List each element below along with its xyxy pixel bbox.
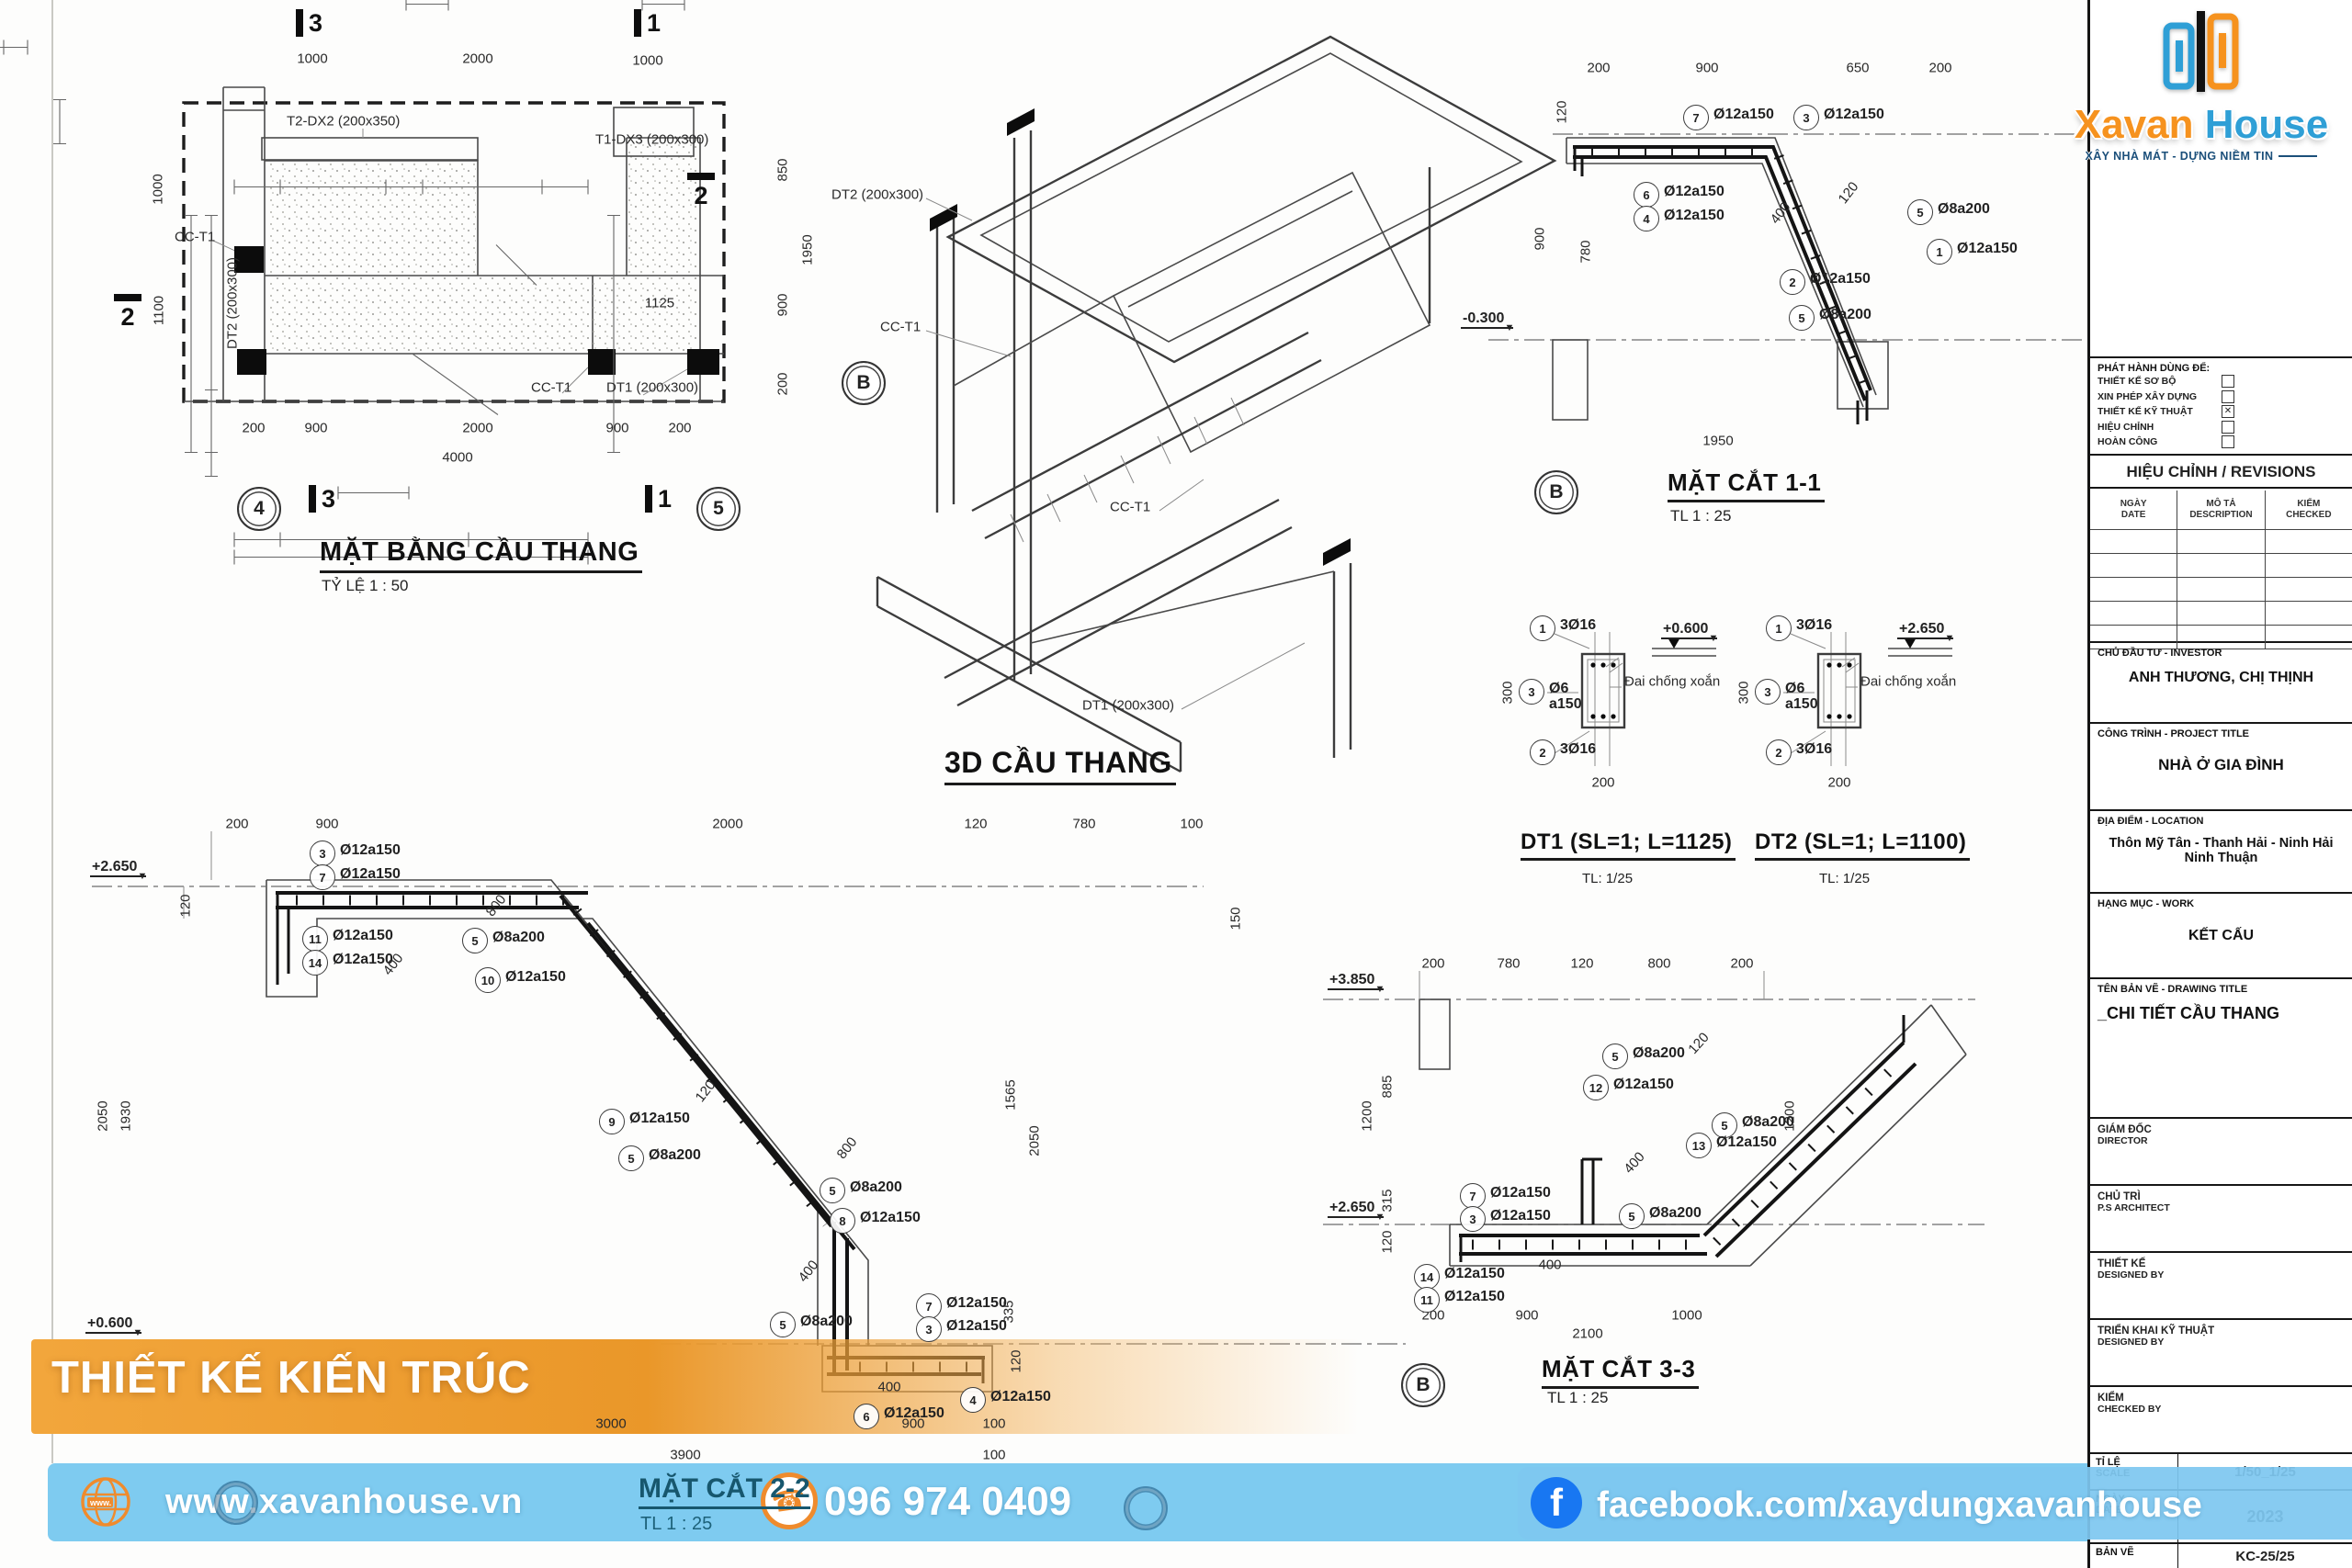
release-item-label: HIỆU CHỈNH	[2098, 422, 2154, 433]
revisions-cell	[2090, 554, 2177, 577]
signer-role-en: DIRECTOR	[2098, 1135, 2345, 1146]
revisions-cell	[2177, 578, 2265, 601]
logo-name-1: Xavan	[2075, 102, 2194, 147]
sec22-scale: TL 1 : 25	[640, 1514, 712, 1535]
signer-row: KIỂMCHECKED BY	[2090, 1387, 2352, 1454]
revisions-empty-row	[2090, 578, 2352, 602]
revisions-empty-row	[2090, 554, 2352, 578]
signer-role-vi: THIẾT KẾ	[2098, 1258, 2345, 1269]
release-item: THIẾT KẾ KỸ THUẬT✕	[2098, 404, 2345, 420]
release-item-label: HOÀN CÔNG	[2098, 436, 2157, 447]
company-logo: Xavan House XÂY NHÀ MÁT - DỰNG NIỀM TIN	[2056, 9, 2346, 179]
revisions-column-header: NGÀY DATE	[2090, 491, 2177, 529]
sec33-scale: TL 1 : 25	[1547, 1389, 1608, 1407]
revisions-cell	[2177, 554, 2265, 577]
investor-label: CHỦ ĐẦU TƯ - INVESTOR	[2098, 648, 2345, 659]
revisions-columns: NGÀY DATEMÔ TẢ DESCRIPTIONKIỂM CHECKED	[2090, 491, 2352, 530]
location-section: ĐỊA ĐIỂM - LOCATION Thôn Mỹ Tân - Thanh …	[2090, 811, 2352, 894]
release-item: XIN PHÉP XÂY DỰNG	[2098, 389, 2345, 405]
investor-value: ANH THƯƠNG, CHỊ THỊNH	[2098, 670, 2345, 686]
signer-row: CHỦ TRÌP.S ARCHITECT	[2090, 1186, 2352, 1253]
globe-icon: www.	[79, 1475, 132, 1533]
release-item-label: THIẾT KẾ SƠ BỘ	[2098, 376, 2176, 387]
signer-role-en: DESIGNED BY	[2098, 1337, 2345, 1348]
iso-linework	[877, 37, 1555, 772]
brand-banner: THIẾT KẾ KIẾN TRÚC	[31, 1339, 1400, 1434]
project-label: CÔNG TRÌNH - PROJECT TITLE	[2098, 728, 2345, 739]
revisions-cell	[2090, 602, 2177, 625]
logo-tagline: XÂY NHÀ MÁT - DỰNG NIỀM TIN	[2086, 150, 2274, 163]
signer-role-vi: CHỦ TRÌ	[2098, 1191, 2345, 1202]
release-item-label: THIẾT KẾ KỸ THUẬT	[2098, 406, 2193, 417]
location-value: Thôn Mỹ Tân - Thanh Hải - Ninh Hải Ninh …	[2098, 836, 2345, 865]
plan-title: MẶT BẰNG CẦU THANG	[320, 537, 642, 573]
work-label: HẠNG MỤC - WORK	[2098, 898, 2345, 909]
iso-title: 3D CẦU THANG	[944, 746, 1176, 785]
title-block: PHÁT HÀNH DÙNG ĐỂ: THIẾT KẾ SƠ BỘXIN PHÉ…	[2087, 0, 2352, 1568]
work-value: KẾT CẤU	[2098, 928, 2345, 944]
revisions-cell	[2177, 530, 2265, 553]
revisions-cell	[2090, 578, 2177, 601]
revisions-table: NGÀY DATEMÔ TẢ DESCRIPTIONKIỂM CHECKED	[2090, 491, 2352, 643]
facebook-icon: f	[1531, 1477, 1582, 1529]
logo-tagline-row: XÂY NHÀ MÁT - DỰNG NIỀM TIN	[2056, 150, 2346, 163]
detail-linework	[332, 0, 1952, 766]
release-item-label: XIN PHÉP XÂY DỰNG	[2098, 391, 2197, 402]
brand-banner-text: THIẾT KẾ KIẾN TRÚC	[51, 1352, 531, 1404]
logo-name-2: House	[2193, 102, 2328, 147]
signer-rows: GIÁM ĐỐCDIRECTORCHỦ TRÌP.S ARCHITECTTHIẾ…	[2090, 1119, 2352, 1454]
dt1-title: DT1 (SL=1; L=1125)	[1521, 829, 1736, 861]
signer-role-en: DESIGNED BY	[2098, 1269, 2345, 1280]
facebook-link[interactable]: facebook.com/xaydungxavanhouse	[1597, 1485, 2202, 1526]
location-label: ĐỊA ĐIỂM - LOCATION	[2098, 816, 2345, 827]
release-title: PHÁT HÀNH DÙNG ĐỂ:	[2098, 363, 2345, 374]
revisions-cell	[2266, 602, 2352, 625]
sec11-title: MẶT CẮT 1-1	[1668, 468, 1825, 502]
checkbox-unchecked[interactable]	[2222, 390, 2234, 403]
signer-role-vi: TRIỂN KHAI KỸ THUẬT	[2098, 1325, 2345, 1337]
sec11-scale: TL 1 : 25	[1670, 507, 1731, 525]
signer-role-en: CHECKED BY	[2098, 1404, 2345, 1415]
revisions-cell	[2266, 554, 2352, 577]
globe-caption: www.	[89, 1498, 111, 1507]
revisions-header: HIỆU CHỈNH / REVISIONS	[2090, 457, 2352, 489]
release-item: HIỆU CHỈNH	[2098, 420, 2345, 435]
checkbox-unchecked[interactable]	[2222, 421, 2234, 434]
logo-buildings-icon	[2159, 9, 2244, 97]
investor-section: CHỦ ĐẦU TƯ - INVESTOR ANH THƯƠNG, CHỊ TH…	[2090, 643, 2352, 724]
facebook-glyph: f	[1550, 1481, 1563, 1525]
sec22-title: MẶT CẮT 2-2	[639, 1473, 810, 1509]
signer-role-vi: KIỂM	[2098, 1393, 2345, 1404]
revisions-cell	[2090, 530, 2177, 553]
phone-number[interactable]: 096 974 0409	[824, 1479, 1071, 1525]
release-item: THIẾT KẾ SƠ BỘ	[2098, 374, 2345, 389]
revisions-column-header: MÔ TẢ DESCRIPTION	[2177, 491, 2265, 529]
revisions-column-header: KIỂM CHECKED	[2266, 491, 2352, 529]
sec33-title: MẶT CẮT 3-3	[1542, 1355, 1699, 1389]
drawing-linework: .o{fill:none;stroke:#4a4a4a;stroke-width…	[0, 0, 2352, 1568]
signer-row: GIÁM ĐỐCDIRECTOR	[2090, 1119, 2352, 1186]
checkbox-unchecked[interactable]	[2222, 375, 2234, 388]
revisions-cell	[2266, 530, 2352, 553]
dt1-scale: TL: 1/25	[1582, 871, 1633, 886]
revisions-empty-row	[2090, 530, 2352, 554]
website-link[interactable]: www.xavanhouse.vn	[165, 1483, 523, 1522]
project-value: NHÀ Ở GIA ĐÌNH	[2098, 756, 2345, 774]
signer-row: TRIỂN KHAI KỸ THUẬTDESIGNED BY	[2090, 1320, 2352, 1387]
tagline-rule	[2278, 155, 2317, 158]
facebook-strip: f facebook.com/xaydungxavanhouse	[1518, 1467, 2352, 1540]
plan-linework	[0, 0, 724, 401]
revisions-empty-row	[2090, 602, 2352, 626]
revisions-cell	[2266, 578, 2352, 601]
sheet-number: KC-25/25	[2178, 1544, 2352, 1568]
release-section: PHÁT HÀNH DÙNG ĐỂ: THIẾT KẾ SƠ BỘXIN PHÉ…	[2090, 356, 2352, 456]
logo-name: Xavan House	[2056, 102, 2346, 148]
dt2-scale: TL: 1/25	[1819, 871, 1870, 886]
sheet-row: BẢN VẼ KC-25/25	[2090, 1544, 2352, 1568]
signer-row: THIẾT KẾDESIGNED BY	[2090, 1253, 2352, 1320]
checkbox-checked[interactable]: ✕	[2222, 405, 2234, 418]
drawing-title-value: _CHI TIẾT CẦU THANG	[2098, 1004, 2345, 1023]
revisions-body	[2090, 530, 2352, 649]
drawing-sheet: .o{fill:none;stroke:#4a4a4a;stroke-width…	[0, 0, 2352, 1568]
sheet-label: BẢN VẼ	[2096, 1547, 2172, 1558]
release-rows: THIẾT KẾ SƠ BỘXIN PHÉP XÂY DỰNGTHIẾT KẾ …	[2098, 374, 2345, 450]
release-item: HOÀN CÔNG	[2098, 434, 2345, 450]
drawing-title-label: TÊN BẢN VẼ - DRAWING TITLE	[2098, 984, 2345, 995]
dt2-title: DT2 (SL=1; L=1100)	[1755, 829, 1970, 861]
drawing-title-section: TÊN BẢN VẼ - DRAWING TITLE _CHI TIẾT CẦU…	[2090, 979, 2352, 1119]
work-section: HẠNG MỤC - WORK KẾT CẤU	[2090, 894, 2352, 979]
project-section: CÔNG TRÌNH - PROJECT TITLE NHÀ Ở GIA ĐÌN…	[2090, 724, 2352, 811]
signer-role-vi: GIÁM ĐỐC	[2098, 1124, 2345, 1135]
plan-scale: TỶ LỆ 1 : 50	[322, 577, 409, 595]
checkbox-unchecked[interactable]	[2222, 435, 2234, 448]
signer-role-en: P.S ARCHITECT	[2098, 1202, 2345, 1213]
revisions-cell	[2177, 602, 2265, 625]
